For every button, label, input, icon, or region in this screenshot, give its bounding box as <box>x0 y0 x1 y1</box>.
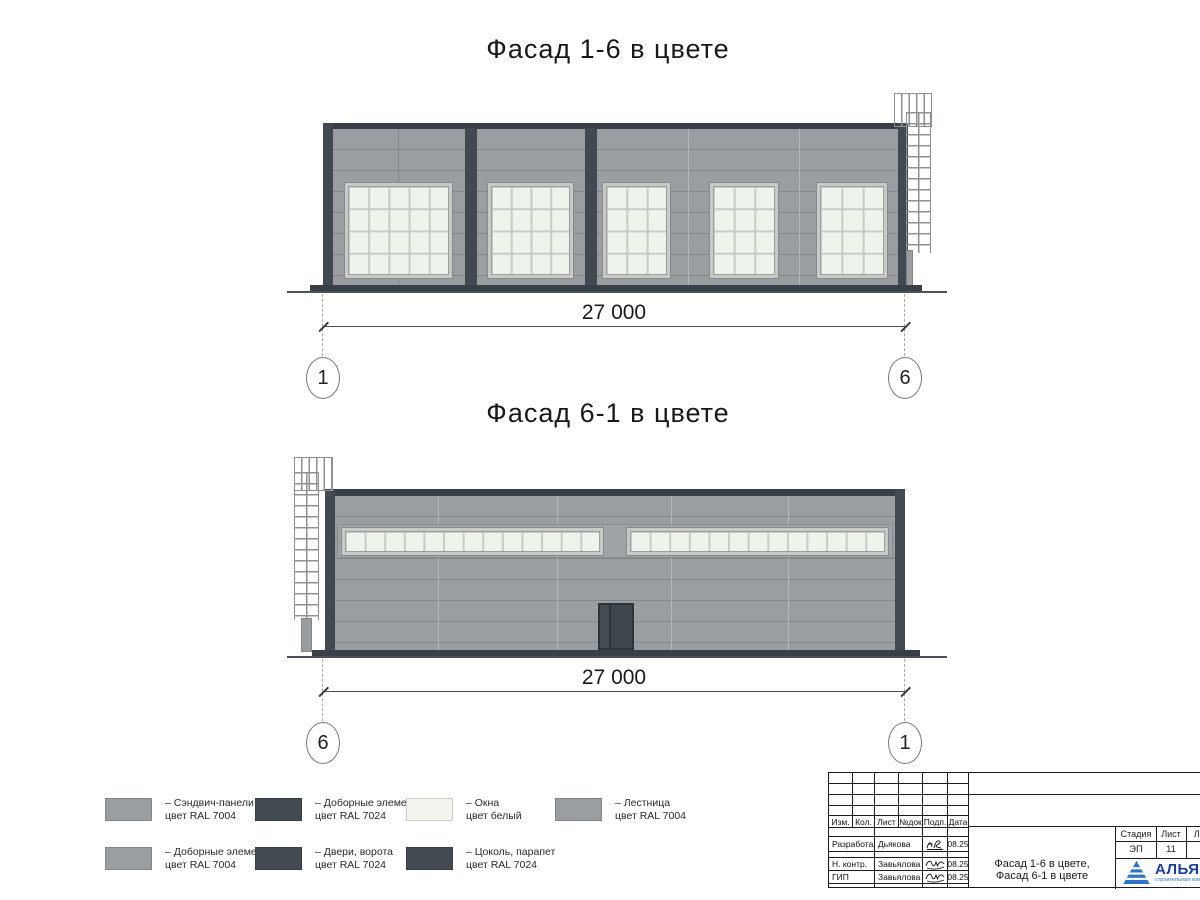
facade2-title: Фасад 6-1 в цвете <box>486 398 729 429</box>
legend-label: – Сэндвич-панели цвет RAL 7004 <box>165 797 254 822</box>
ribbon-window <box>342 528 603 555</box>
name: Дьякова <box>875 837 923 851</box>
signoff-row-empty <box>829 828 968 837</box>
axis-number: 1 <box>317 367 328 390</box>
facade1-title: Фасад 1-6 в цвете <box>486 34 729 65</box>
company-name-block: АЛЬЯНС строительная компания <box>1155 862 1200 883</box>
role: Н. контр. <box>829 858 875 870</box>
revision-header-row: Изм. Кол. Лист №док Подп. Дата <box>829 816 968 828</box>
revision-row <box>829 795 968 806</box>
axis-bubble-1: 1 <box>888 722 922 764</box>
legend-swatch <box>105 847 152 870</box>
sheet-value: 11 <box>1156 841 1186 858</box>
dimension-line <box>323 326 905 327</box>
col-header: Кол. <box>853 816 875 827</box>
legend-label-line2: цвет RAL 7024 <box>315 859 393 872</box>
signature-icon <box>924 871 946 883</box>
doc-title-line1: Фасад 1-6 в цвете, <box>994 858 1089 870</box>
pilaster <box>465 128 477 285</box>
corner-column-left <box>323 123 333 285</box>
legend-swatch <box>255 798 302 821</box>
signature <box>923 858 948 870</box>
doc-title-cell: Фасад 1-6 в цвете, Фасад 6-1 в цвете <box>969 826 1115 887</box>
window <box>603 183 670 278</box>
ladder-cage <box>294 472 319 620</box>
company-logo: АЛЬЯНС строительная компания <box>1116 858 1200 887</box>
entrance-door <box>598 603 634 650</box>
ground-line <box>287 656 947 658</box>
panel-joint-v <box>799 129 800 285</box>
legend-label-line1: – Лестница <box>615 797 686 810</box>
col-header: Подп. <box>923 816 948 827</box>
ladder-stringer <box>906 250 913 288</box>
signoff-row: Н. контр. Завьялова 08.25 <box>829 858 968 871</box>
dimension-label: 27 000 <box>582 666 646 690</box>
name: Завьялова <box>875 858 923 870</box>
corner-column-right <box>895 489 905 650</box>
titleblock-signoff-table: Изм. Кол. Лист №док Подп. Дата Разработа… <box>828 772 969 888</box>
dimension-label: 27 000 <box>582 301 646 325</box>
col-header: Дата <box>948 816 968 827</box>
axis-bubble-6: 6 <box>306 722 340 764</box>
window <box>345 183 452 278</box>
panel-joint-v <box>788 496 789 650</box>
date: 08.25 <box>948 837 968 851</box>
legend-label-line1: – Цоколь, парапет <box>466 846 555 859</box>
signature-icon <box>924 858 946 870</box>
legend-label-line1: – Окна <box>466 797 522 810</box>
legend-label: – Лестница цвет RAL 7004 <box>615 797 686 822</box>
legend-label: – Окна цвет белый <box>466 797 522 822</box>
legend-swatch <box>406 798 453 821</box>
company-name: АЛЬЯНС <box>1155 862 1200 877</box>
ground-line <box>287 291 947 293</box>
legend-label-line2: цвет RAL 7004 <box>615 810 686 823</box>
legend-label: – Двери, ворота цвет RAL 7024 <box>315 846 393 871</box>
doc-title-line2: Фасад 6-1 в цвете <box>996 870 1088 882</box>
axis-number: 6 <box>317 732 328 755</box>
signature-icon <box>924 837 946 851</box>
legend-label-line2: цвет RAL 7024 <box>466 859 555 872</box>
window <box>817 183 887 278</box>
revision-row <box>829 773 968 784</box>
revision-row <box>829 784 968 795</box>
drawing-sheet: Фасад 1-6 в цвете 27 000 1 6 Фасад 6-1 в… <box>0 0 1200 900</box>
sheets-value: 2 <box>1186 841 1200 858</box>
pyramid-logo-icon <box>1123 861 1150 884</box>
legend-label-line2: цвет белый <box>466 810 522 823</box>
col-header: Изм. <box>829 816 853 827</box>
parapet-band <box>323 123 908 129</box>
facade2-drawing <box>325 489 905 650</box>
window <box>710 183 778 278</box>
legend-label-line2: цвет RAL 7004 <box>165 810 254 823</box>
ladder-cage <box>906 112 931 253</box>
panel-joint-v <box>671 496 672 650</box>
company-tagline: строительная компания <box>1155 877 1200 883</box>
titleblock-line <box>969 794 1200 795</box>
legend-swatch <box>406 847 453 870</box>
date: 08.25 <box>948 871 968 883</box>
stage-value: ЭП <box>1116 841 1156 858</box>
revision-row <box>829 806 968 816</box>
legend-swatch <box>255 847 302 870</box>
legend-swatch <box>105 798 152 821</box>
stage-header: Стадия <box>1116 826 1156 841</box>
titleblock-main: Фасад 1-6 в цвете, Фасад 6-1 в цвете Ста… <box>969 772 1200 888</box>
sheets-header: Листов <box>1186 826 1200 841</box>
legend-label-line1: – Сэндвич-панели <box>165 797 254 810</box>
axis-number: 6 <box>899 367 910 390</box>
signature <box>923 871 948 883</box>
corner-column-left <box>325 489 335 650</box>
col-header: Лист <box>875 816 899 827</box>
panel-joint-v <box>557 496 558 650</box>
parapet-band <box>325 489 905 496</box>
legend-label-line1: – Двери, ворота <box>315 846 393 859</box>
axis-bubble-1: 1 <box>306 357 340 399</box>
name: Завьялова <box>875 871 923 883</box>
pilaster <box>585 128 597 285</box>
legend-swatch <box>555 798 602 821</box>
dimension-line <box>323 691 905 692</box>
panel-joint-v <box>438 496 439 650</box>
legend-label: – Цоколь, парапет цвет RAL 7024 <box>466 846 555 871</box>
col-header: №док <box>899 816 923 827</box>
window <box>488 183 573 278</box>
facade1-drawing <box>323 123 908 285</box>
signoff-row: ГИП Завьялова 08.25 <box>829 871 968 884</box>
role: Разработал <box>829 837 875 851</box>
panel-joint-v <box>688 129 689 285</box>
ribbon-window <box>627 528 888 555</box>
sheet-header: Лист <box>1156 826 1186 841</box>
role: ГИП <box>829 871 875 883</box>
date: 08.25 <box>948 858 968 870</box>
axis-bubble-6: 6 <box>888 357 922 399</box>
ladder-stringer <box>301 618 312 652</box>
signature <box>923 837 948 851</box>
axis-number: 1 <box>899 732 910 755</box>
signoff-row: Разработал Дьякова 08.25 <box>829 837 968 852</box>
